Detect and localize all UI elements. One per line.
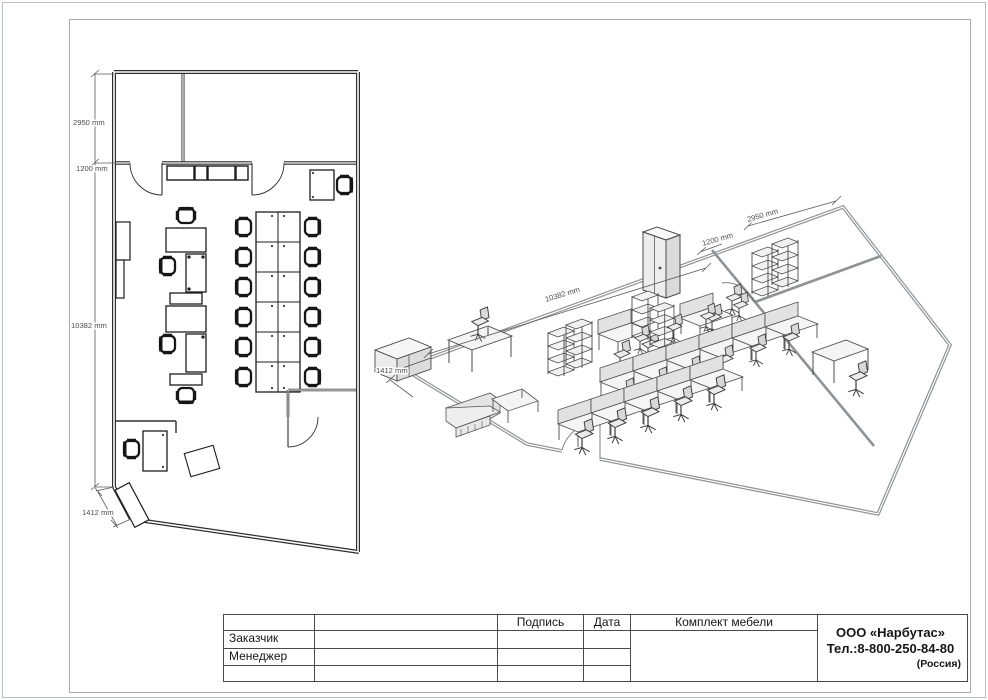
tb-empty-r4c1 bbox=[224, 666, 315, 681]
drawing-sheet: { "page": { "background": "#ffffff", "fr… bbox=[0, 0, 988, 700]
tb-header-date: Дата bbox=[584, 615, 631, 631]
plan-desk-topright bbox=[310, 170, 352, 200]
dim-1412-3d: 1412 mm bbox=[376, 366, 408, 375]
company-country: (Россия) bbox=[820, 658, 961, 670]
dim-10382-3d: 10382 mm bbox=[544, 285, 581, 304]
plan-dimensions: 2950 mm 1200 mm 10382 mm 1412 mm bbox=[71, 70, 131, 528]
company-name: ООО «Нарбутас» bbox=[820, 626, 961, 641]
plan-bench-desks bbox=[236, 212, 320, 392]
tb-empty-r4c3 bbox=[498, 666, 584, 681]
tb-empty-r4c2 bbox=[315, 666, 498, 681]
drawing-canvas: 2950 mm 1200 mm 10382 mm 1412 mm bbox=[0, 0, 988, 700]
tb-customer-value bbox=[315, 631, 498, 649]
dim-2950-3d: 2950 mm bbox=[746, 207, 779, 224]
dim-1200-2d: 1200 mm bbox=[76, 164, 108, 173]
tb-company-cell: ООО «Нарбутас» Тел.:8-800-250-84-80 (Рос… bbox=[818, 615, 967, 681]
plan-meeting-area bbox=[160, 208, 206, 403]
tb-empty-r4c4 bbox=[584, 666, 631, 681]
tb-manager-date bbox=[584, 649, 631, 666]
tb-customer-signature bbox=[498, 631, 584, 649]
iso-wardrobe bbox=[643, 227, 680, 298]
tb-manager-value bbox=[315, 649, 498, 666]
plan-lounge-area bbox=[115, 431, 220, 527]
plan-left-cabinets bbox=[116, 222, 130, 298]
dim-2950-2d: 2950 mm bbox=[73, 118, 105, 127]
view-3d: 10382 mm 2950 mm 1200 mm 1412 mm bbox=[375, 196, 950, 514]
plan-2d: 2950 mm 1200 mm 10382 mm 1412 mm bbox=[71, 70, 359, 552]
dim-10382-2d: 10382 mm bbox=[71, 321, 107, 330]
title-block: Подпись Дата Комплект мебели ООО «Нарбут… bbox=[223, 614, 968, 682]
tb-header-signature: Подпись bbox=[498, 615, 584, 631]
iso-desk-right bbox=[812, 340, 868, 397]
dim-1412-2d: 1412 mm bbox=[82, 508, 114, 517]
plan-entrance bbox=[288, 390, 356, 447]
tb-empty-r1c2 bbox=[315, 615, 498, 631]
tb-set-body bbox=[631, 631, 818, 681]
tb-manager-signature bbox=[498, 649, 584, 666]
plan-wall-cabinets bbox=[167, 166, 248, 180]
tb-empty-r1c1 bbox=[224, 615, 315, 631]
tb-customer-date bbox=[584, 631, 631, 649]
company-phone: Тел.:8-800-250-84-80 bbox=[820, 642, 961, 657]
tb-row-manager: Менеджер bbox=[224, 649, 315, 666]
tb-header-set: Комплект мебели bbox=[631, 615, 818, 631]
iso-sofa bbox=[446, 389, 538, 437]
tb-row-customer: Заказчик bbox=[224, 631, 315, 649]
